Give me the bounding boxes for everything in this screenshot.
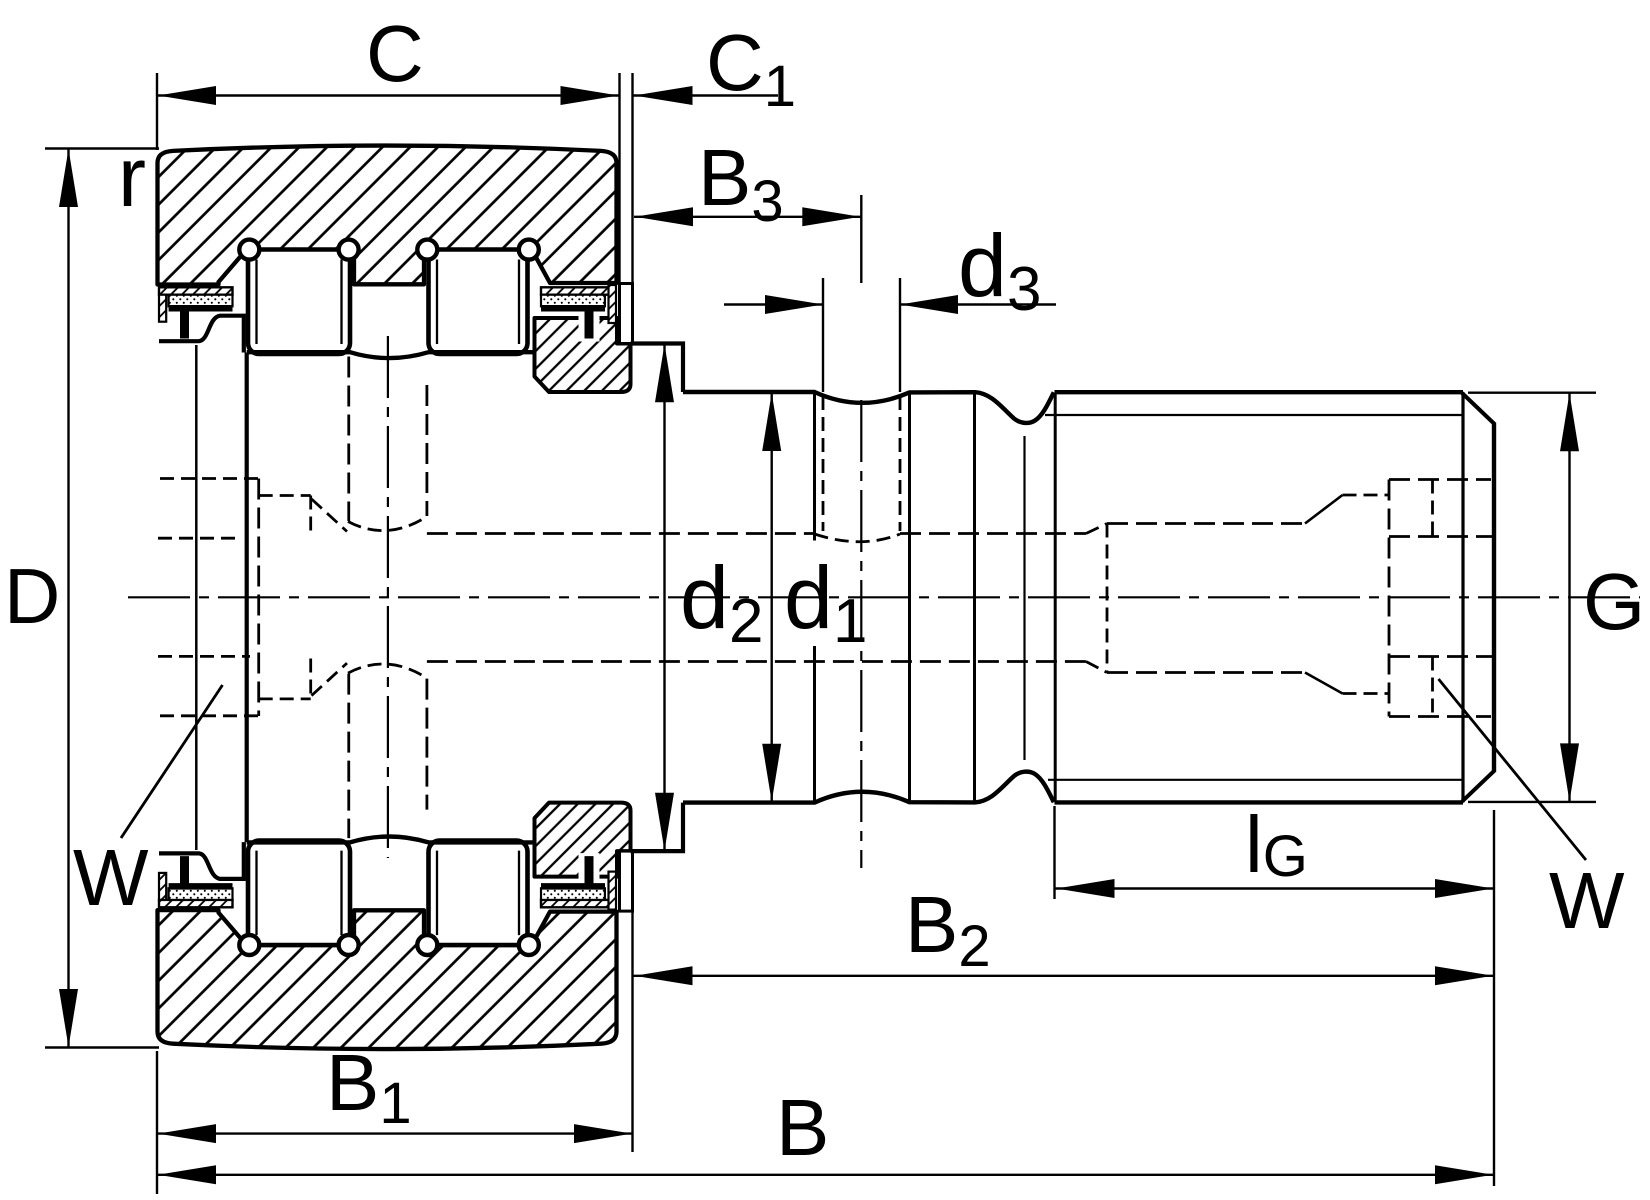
- svg-text:r: r: [118, 130, 146, 224]
- svg-text:D: D: [4, 552, 60, 640]
- svg-text:G: G: [1583, 557, 1645, 646]
- svg-text:W: W: [1549, 856, 1625, 945]
- svg-text:W: W: [73, 833, 149, 922]
- svg-text:B: B: [776, 1083, 829, 1172]
- svg-text:C: C: [366, 9, 424, 98]
